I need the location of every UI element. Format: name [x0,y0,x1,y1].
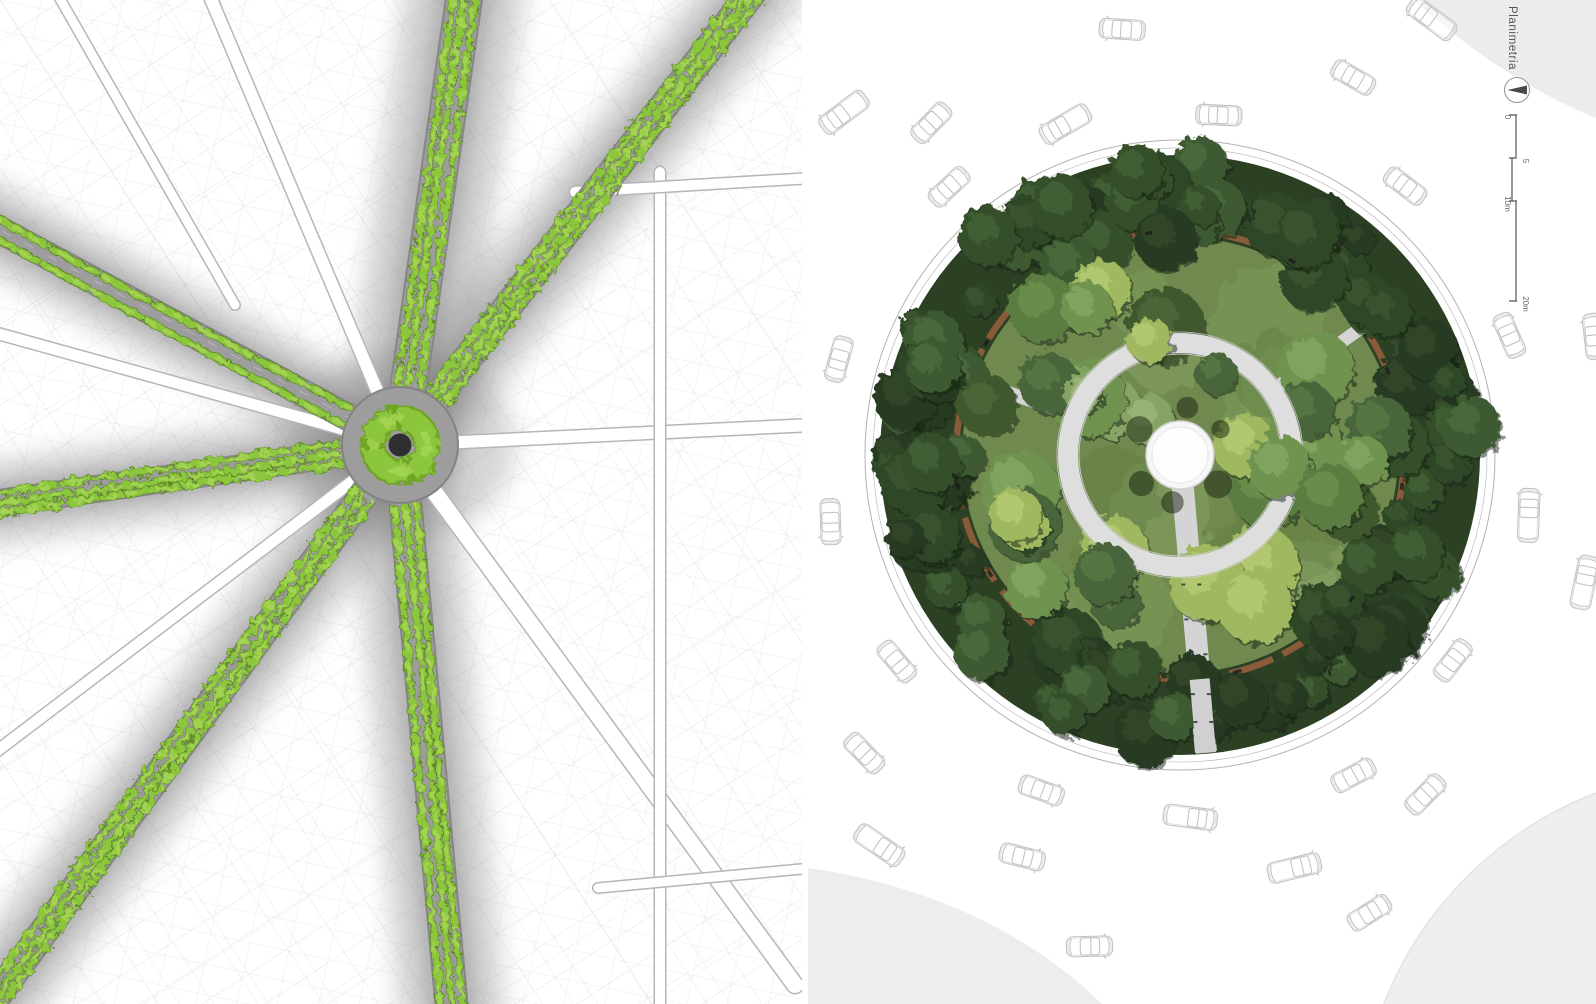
car-sketch [997,839,1048,874]
roundabout-panel [802,0,1596,1004]
car-sketch [1195,102,1242,129]
scale-tick-10: 10m [1503,196,1512,212]
drawing-title: Planimetria [1506,6,1518,70]
car-sketch [1327,55,1379,99]
roundabout [342,387,458,503]
scale-bar: 0 5 10m 20m [1500,103,1546,315]
scale-tick-0: 0 [1503,115,1512,120]
car-sketch [815,86,874,139]
south-path [1200,679,1206,753]
car-sketch [1579,312,1596,360]
car-sketch [1327,754,1379,798]
car-sketch [924,162,975,212]
car-sketch [1343,890,1395,936]
car-sketch [1036,99,1096,149]
car-sketch [1015,771,1067,810]
car-sketch [850,819,909,871]
city-map-panel [0,0,802,1004]
car-sketch [1429,635,1477,687]
car-sketch [1400,769,1450,819]
car-sketch [1066,933,1113,959]
car-sketch [1265,849,1324,887]
car-sketch [817,498,844,545]
roundabout-site-plan [802,0,1596,1004]
corner-shade-bottom-left [808,868,1102,1004]
scale-tick-5: 5 [1521,159,1530,164]
scale-tick-20: 20m [1521,296,1530,312]
car-sketch [906,98,956,148]
car-sketch [821,334,857,385]
car-sketch [839,728,889,778]
car-sketch [1162,801,1219,834]
car-sketch [872,636,921,687]
corner-disc-bottom-right [1358,768,1596,1004]
car-sketch [1379,162,1431,210]
park-plan [865,136,1503,770]
car-sketch [1566,553,1596,611]
car-sketch [1489,309,1530,361]
page: Planimetria 0 5 10m 20m [0,0,1596,1004]
city-map-plan [0,0,802,1004]
car-sketch [1515,488,1543,543]
car-sketch [1098,15,1146,43]
